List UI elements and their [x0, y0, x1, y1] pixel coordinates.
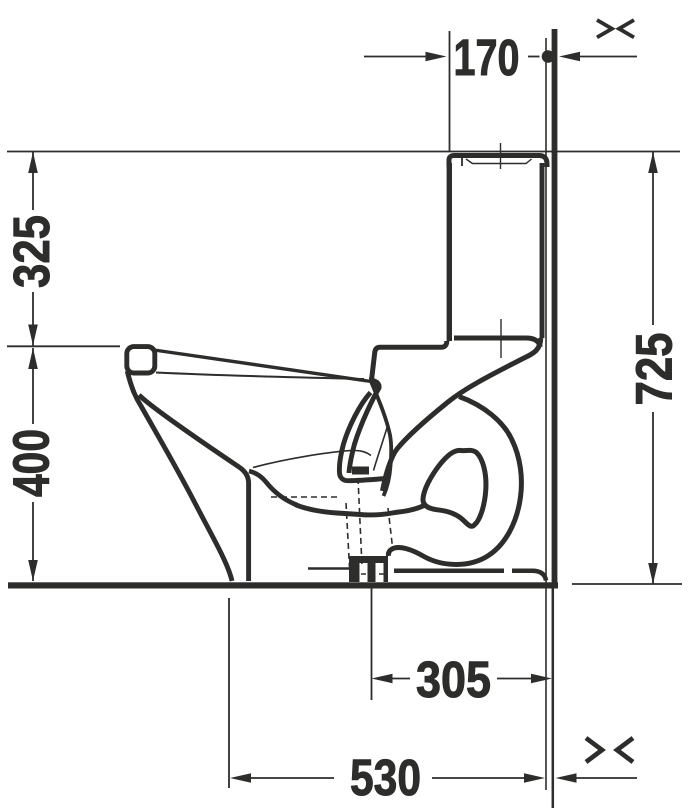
- svg-text:305: 305: [416, 651, 491, 708]
- svg-text:725: 725: [626, 333, 683, 406]
- svg-text:400: 400: [3, 429, 60, 497]
- svg-text:530: 530: [350, 749, 421, 806]
- svg-text:325: 325: [3, 215, 60, 288]
- svg-text:170: 170: [454, 29, 520, 86]
